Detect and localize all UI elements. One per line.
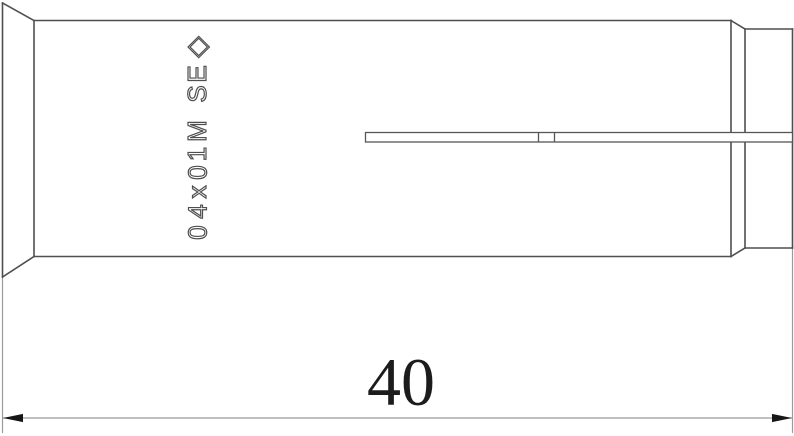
dimension-value: 40 [367,348,435,416]
right-chamfer-bottom [731,248,745,257]
expansion-slot [366,133,793,143]
dimension-arrow-right [772,414,792,422]
right-chamfer-top [731,21,745,30]
dimension-arrow-left [3,414,23,422]
engraving-char: 0 [187,212,208,254]
engraving-marking: ◇ES M10x40 [176,30,218,243]
left-chamfer-top [3,3,35,21]
left-chamfer-bottom [3,257,35,278]
drawing-canvas: ◇ES M10x40 40 [0,0,794,436]
